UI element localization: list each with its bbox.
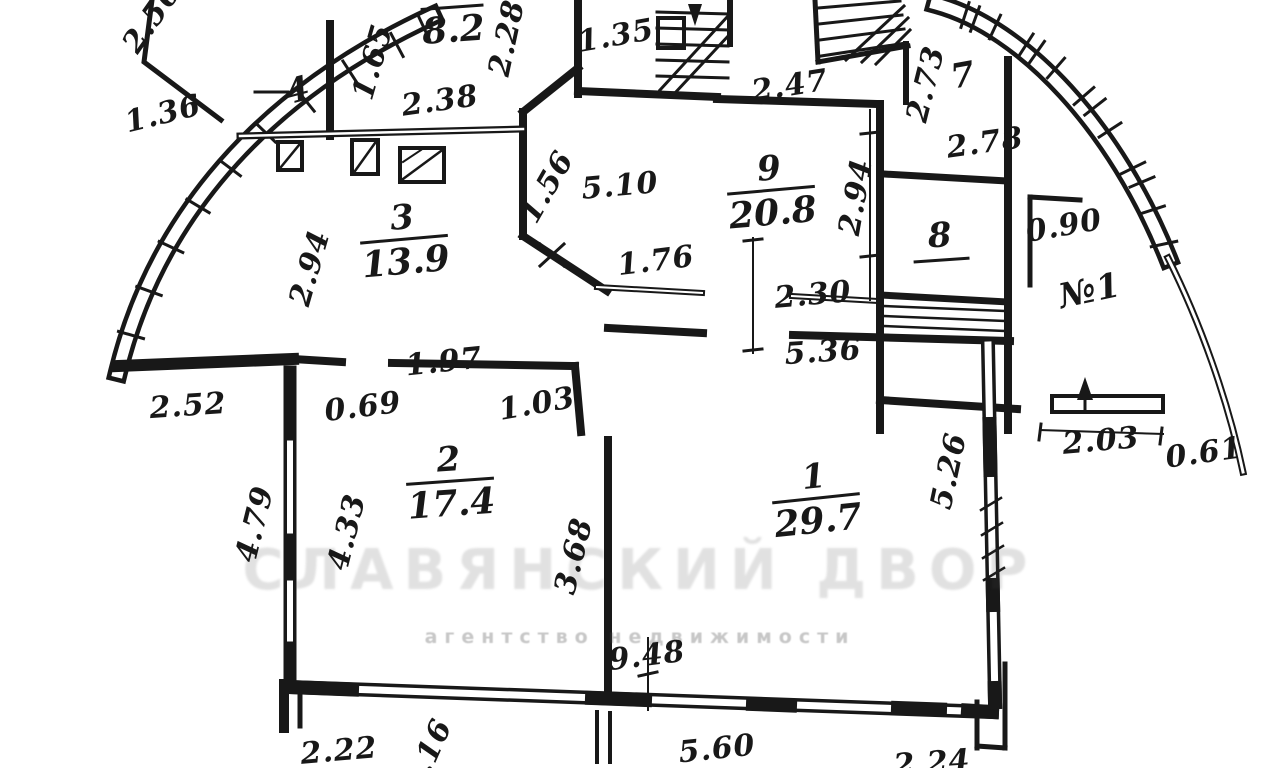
room-number: 8 [911,217,970,263]
entrance-arrow [1077,377,1093,400]
dim-5-60: 5.60 [677,728,757,768]
stair-direction-arrow [688,4,702,26]
room-area: 8.2 [421,6,486,51]
ventilation-shafts [278,140,444,182]
room-area: 20.8 [727,188,818,236]
room-label-9: 920.8 [724,148,818,236]
dim-2-24: 2.24 [892,743,971,768]
dim-5-36: 5.36 [783,332,862,372]
room-area: 13.9 [360,237,451,285]
room-number: 2 [403,440,493,486]
window-band-bottom [289,687,992,712]
stair-steps [657,12,730,94]
entrance-porch [1052,377,1163,412]
floor-plan-canvas: СЛАВЯНСКИЙ ДВОР агентство недвижимости 2… [0,0,1280,768]
room-label-1: 129.7 [768,455,864,544]
dim-2-52: 2.52 [148,386,227,426]
dim-2-22: 2.22 [299,730,379,768]
room-label-3: 313.9 [357,197,451,285]
dim-5-10: 5.10 [580,165,660,207]
room-area: 29.7 [772,495,863,545]
dim-2-30: 2.30 [773,274,853,316]
duct-shaft-lines [884,306,1004,331]
room-label-5: 58.2 [418,0,486,51]
window-band-east [981,345,1004,702]
room-area: 17.4 [406,479,496,526]
room-label-2: 217.4 [403,440,496,526]
room-label-8: 8 [911,217,970,263]
dim-2-03: 2.03 [1061,420,1141,462]
